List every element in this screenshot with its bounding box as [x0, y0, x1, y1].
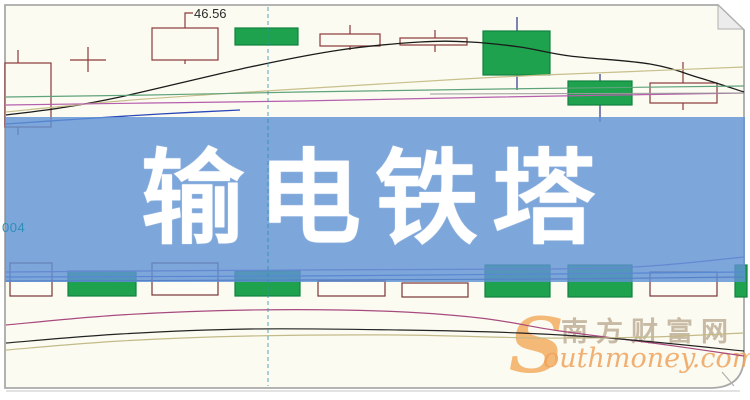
volume-bar-hollow — [318, 281, 385, 296]
axis-label-fragment: 004 — [2, 220, 25, 235]
volume-bar-hollow — [402, 283, 468, 297]
candle-body-up — [320, 34, 380, 46]
banner-title: 输电铁塔 — [0, 143, 750, 263]
candle-body-up — [152, 28, 218, 60]
candle-body-down — [483, 31, 550, 75]
price-annotation-label: 46.56 — [194, 6, 227, 21]
watermark-site-en: outhmoney.com — [543, 343, 750, 374]
page-fold-corner-icon — [718, 5, 743, 29]
candle-body-down — [235, 28, 298, 45]
